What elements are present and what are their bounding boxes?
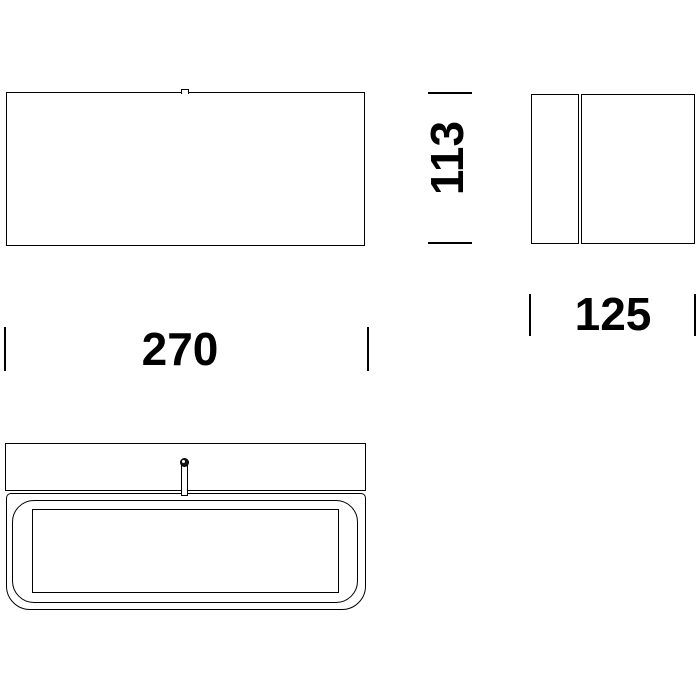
set-screw-head [180,458,189,467]
cable-notch [181,89,189,94]
set-screw-shaft [181,464,188,496]
side-view-mount-plate-outline [531,94,579,244]
side-view-body-outline [581,94,695,244]
bottom-view-diffuser-panel [32,509,339,593]
dim-height-tick-bottom [428,242,472,244]
front-view-outline [6,92,365,246]
dim-width-label: 270 [0,324,360,374]
dim-width-tick-right [367,327,369,371]
dim-height-label: 113 [422,78,472,238]
technical-drawing-canvas: 113 125 270 [0,0,700,700]
dim-depth-label: 125 [530,289,696,339]
